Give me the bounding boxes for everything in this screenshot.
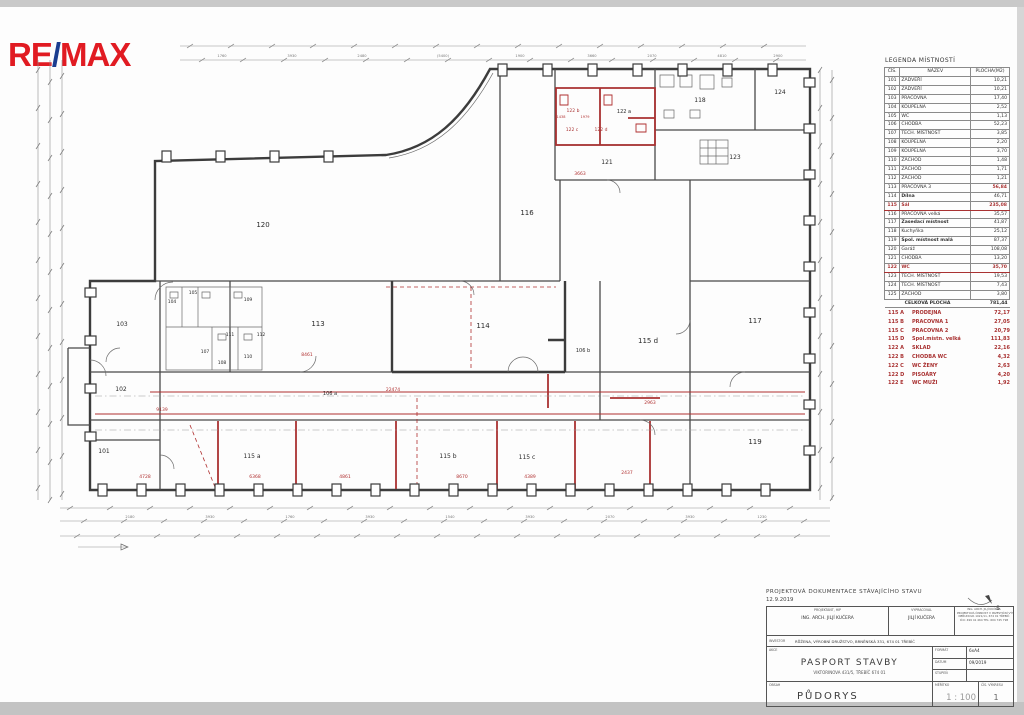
plan-text: 107 [201, 349, 210, 355]
legend-row: 114Dílna46,71 [885, 192, 1010, 201]
plan-text: 3930 [365, 515, 375, 519]
plan-text: 115 a [243, 453, 260, 460]
plan-text: 115 d [638, 337, 658, 345]
investor-value: RŮŽENA, VÝROBNÍ DRUŽSTVO, BRNĚNSKÁ 331, … [793, 638, 1013, 645]
legend-row: 104KOUPELNA2,52 [885, 103, 1010, 112]
plan-text: 3930 [287, 54, 297, 58]
plan-text: 122 a [617, 109, 631, 115]
projektant-value: ING. ARCH. JILJÍ KUČERA [769, 616, 886, 621]
datum-value: 09/2019 [967, 659, 1013, 670]
meritko-value: 1 : 100 [935, 693, 976, 703]
plan-text: 104 [168, 299, 177, 305]
plan-text: 109 [244, 297, 253, 303]
legend-row: 103PRACOVNA17,40 [885, 94, 1010, 103]
plan-text: 118 [694, 97, 706, 104]
plan-text: 101 [98, 448, 110, 455]
legend-header-name: NÁZEV [900, 68, 971, 77]
plan-text: 115 b [439, 453, 456, 460]
plan-text: 1540 [445, 515, 455, 519]
sublist-item: 122 BCHODBA WC4,32 [888, 353, 1010, 362]
plan-text: 111 [226, 332, 235, 338]
plan-text: 1979 [581, 115, 590, 119]
plan-text: 1230 [757, 515, 767, 519]
akce-title: PASPORT STAVBY [769, 658, 930, 668]
firm-info-cell: ING. ARCH. JILJÍ KUČERAPROJEKTOVÁ ČINNOS… [955, 607, 1013, 635]
legend-row: 119Spol. místnost malá87,37 [885, 237, 1010, 246]
plan-text: 8670 [456, 474, 468, 480]
plan-text: 1438 [557, 115, 566, 119]
vykres-value: 1 [981, 693, 1011, 702]
legend-row: 107TECH. MÍSTNOST3,85 [885, 130, 1010, 139]
room-labels: 1011021031041051071081091101111121131141… [98, 89, 786, 461]
interior-walls [90, 69, 810, 490]
legend-table: ČÍS. NÁZEV PLOCHA(M2) 101ZÁDVEŘÍ10,21102… [884, 67, 1010, 308]
plan-text: 122 b [567, 108, 580, 114]
plan-text: 105 [189, 290, 198, 296]
plan-text: 124 [774, 89, 786, 96]
plan-text: 115 c [519, 454, 536, 461]
plan-text: 108 [218, 360, 227, 366]
plan-text: 4810 [717, 54, 727, 58]
plan-text: 1900 [515, 54, 525, 58]
legend-row: 101ZÁDVEŘÍ10,21 [885, 76, 1010, 85]
plan-text: 117 [748, 317, 761, 325]
projektant-cell: PROJEKTANT, HIP ING. ARCH. JILJÍ KUČERA [767, 607, 889, 635]
akce-address: VIKTORINOVA 431/5, TŘEBÍČ 674 01 [769, 670, 930, 675]
drawing-title: PŮDORYS [797, 691, 930, 702]
plan-text: 2070 [647, 54, 657, 58]
legend-header-area: PLOCHA(M2) [971, 68, 1010, 77]
door-arcs [90, 180, 745, 469]
plan-text: 119 [748, 438, 761, 446]
title-block: PROJEKTOVÁ DOKUMENTACE STÁVAJÍCÍHO STAVU… [766, 589, 1016, 707]
plan-text: 4389 [524, 474, 536, 480]
legend-total-row: CELKOVÁ PLOCHA 781,44 [885, 299, 1010, 308]
plan-text: 122 d [595, 127, 608, 133]
room-legend: LEGENDA MÍSTNOSTÍ ČÍS. NÁZEV PLOCHA(M2) … [884, 57, 1012, 308]
cis-vykresu-cell: ČÍS. VÝKRESU 1 [979, 682, 1013, 706]
plan-text: 2180 [125, 515, 135, 519]
plan-text: 120 [256, 221, 269, 229]
document-date: 12.9.2019 [766, 597, 1016, 603]
legend-row: 118Kuchyňka25,12 [885, 228, 1010, 237]
stupen-value [967, 670, 1013, 681]
legend-row: 115Sál235,08 [885, 201, 1010, 210]
legend-row: 120Garáž108,08 [885, 246, 1010, 255]
datum-label: DATUM [933, 659, 967, 670]
plan-text: 3930 [525, 515, 535, 519]
akce-cell: AKCE PASPORT STAVBY VIKTORINOVA 431/5, T… [767, 647, 933, 681]
akce-label: AKCE [769, 648, 930, 652]
legend-row: 110ZÁCHOD1,48 [885, 157, 1010, 166]
meta-cell: FORMÁT 6xA4 DATUM 09/2019 STUPEŇ [933, 647, 1013, 681]
plan-text: 3663 [574, 171, 586, 177]
firm-info-line: IČO: 499 41 464 TEL: 604 745 798 [957, 619, 1011, 623]
legend-row: 105WC1,13 [885, 112, 1010, 121]
dimension-chains [36, 44, 834, 550]
sublist-item: 115 DSpol.místn. velká111,83 [888, 335, 1010, 344]
projektant-label: PROJEKTANT, HIP [769, 608, 886, 612]
legend-row: 102ZÁDVEŘÍ10,21 [885, 85, 1010, 94]
vykres-label: ČÍS. VÝKRESU [981, 683, 1011, 687]
red-walls [95, 88, 805, 489]
legend-row: 121CHODBA13,20 [885, 255, 1010, 264]
legend-row: 113PRACOVNA 356,84 [885, 183, 1010, 192]
plan-text: 110 [244, 354, 253, 360]
format-value: 6xA4 [967, 647, 1013, 658]
legend-total-value: 781,44 [971, 299, 1010, 308]
sublist-item: 122 DPISOÁRY4,20 [888, 371, 1010, 380]
vypracoval-value: JILJÍ KUČERA [891, 616, 952, 621]
plan-text: 6368 [249, 474, 261, 480]
plan-text: 3930 [685, 515, 695, 519]
plan-text: 2480 [357, 54, 367, 58]
scanned-floorplan-page: RE/MAX [0, 0, 1024, 715]
legend-row: 117Zasedací místnost41,87 [885, 219, 1010, 228]
vypracoval-label: VYPRACOVAL [891, 608, 952, 612]
legend-row: 109KOUPELNA3,70 [885, 148, 1010, 157]
meritko-cell: MĚŘÍTKO 1 : 100 [933, 682, 979, 706]
plan-text: 3660 [587, 54, 597, 58]
plan-text: 123 [729, 154, 741, 161]
obsah-cell: OBSAH PŮDORYS [767, 682, 933, 706]
plan-text: 102 [115, 386, 127, 393]
legend-total-label: CELKOVÁ PLOCHA [885, 299, 971, 308]
stupen-label: STUPEŇ [933, 670, 967, 681]
plan-text: 113 [311, 320, 324, 328]
legend-row: 116PRACOVNA velká35,57 [885, 210, 1010, 219]
plan-text: 106 b [576, 348, 590, 354]
sublist-item: 115 BPRACOVNA 127,05 [888, 318, 1010, 327]
plan-text: 116 [520, 209, 534, 217]
plan-text: 121 [601, 159, 613, 166]
sublist-item: 122 CWC ŽENY2,63 [888, 362, 1010, 371]
legend-row: 108KOUPELNA2,20 [885, 139, 1010, 148]
plan-text: 122 c [566, 127, 579, 133]
plan-text: 103 [116, 321, 128, 328]
plan-text: 4861 [339, 474, 351, 480]
legend-row: 111ZÁCHOD1,71 [885, 165, 1010, 174]
legend-row: 124TECH. MÍSTNOST7,43 [885, 281, 1010, 290]
legend-row: 106CHODBA52,23 [885, 121, 1010, 130]
plan-text: 9139 [156, 407, 168, 413]
dimension-texts: 2247491398461366329634728636848618670438… [125, 54, 783, 519]
meritko-label: MĚŘÍTKO [935, 683, 976, 687]
plan-text: 1760 [285, 515, 295, 519]
plan-text: 2900 [773, 54, 783, 58]
legend-row: 125ZÁCHOD3,80 [885, 290, 1010, 299]
plan-text: 2437 [621, 470, 633, 476]
legend-header-num: ČÍS. [885, 68, 900, 77]
plan-text: 2963 [644, 400, 656, 406]
plan-text: 8461 [301, 352, 313, 358]
legend-row: 123TECH. MÍSTNOST19,53 [885, 272, 1010, 281]
title-block-table: PROJEKTANT, HIP ING. ARCH. JILJÍ KUČERA … [766, 606, 1014, 707]
building-outline [68, 69, 810, 490]
plan-text: 22474 [386, 387, 400, 393]
subdivided-rooms-list: 115 APRODEJNA72,17115 BPRACOVNA 127,0511… [888, 309, 1010, 388]
legend-row: 112ZÁCHOD1,21 [885, 174, 1010, 183]
plan-text: 4728 [139, 474, 151, 480]
sublist-item: 122 EWC MUŽI1,92 [888, 379, 1010, 388]
obsah-label: OBSAH [769, 683, 930, 687]
sublist-item: 115 APRODEJNA72,17 [888, 309, 1010, 318]
plan-text: 3930 [205, 515, 215, 519]
window-pillars [85, 64, 815, 496]
plan-text: 1760 [217, 54, 227, 58]
format-label: FORMÁT [933, 647, 967, 658]
document-title: PROJEKTOVÁ DOKUMENTACE STÁVAJÍCÍHO STAVU [766, 589, 1016, 595]
sublist-item: 115 CPRACOVNA 220,79 [888, 327, 1010, 336]
sublist-item: 122 ASKLAD22,16 [888, 344, 1010, 353]
vypracoval-cell: VYPRACOVAL JILJÍ KUČERA [889, 607, 955, 635]
legend-row: 122WC35,70 [885, 263, 1010, 272]
legend-title: LEGENDA MÍSTNOSTÍ [885, 57, 1012, 64]
plan-text: 2070 [605, 515, 615, 519]
legend-header-row: ČÍS. NÁZEV PLOCHA(M2) [885, 68, 1010, 77]
plan-text: 112 [257, 332, 266, 338]
plan-text: 106 a [323, 391, 337, 397]
investor-label: INVESTOR [767, 638, 793, 644]
plan-text: 114 [476, 322, 490, 330]
plan-text: (5400) [437, 54, 450, 58]
